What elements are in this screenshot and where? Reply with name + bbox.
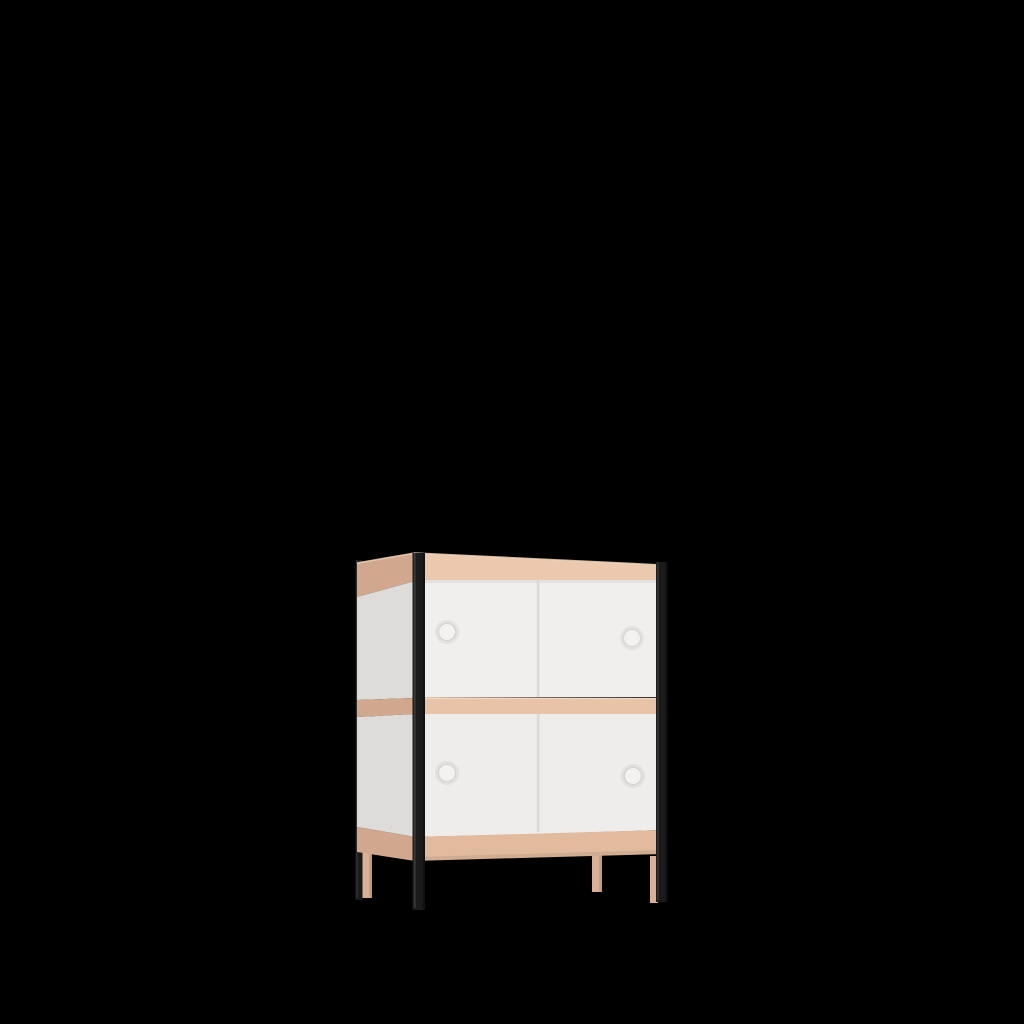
door-seam-lower bbox=[537, 714, 540, 832]
handle-upper-right bbox=[622, 628, 643, 649]
wood-leg-rear-left-shade bbox=[370, 848, 373, 898]
scene-background bbox=[0, 0, 1024, 1024]
handle-lower-left bbox=[437, 763, 458, 784]
wood-leg-rear-center-shade bbox=[599, 855, 602, 892]
background-fill bbox=[0, 0, 1024, 1024]
door-upper-left bbox=[413, 580, 538, 697]
door-seam-upper bbox=[537, 580, 540, 697]
handle-lower-right bbox=[623, 766, 644, 787]
handle-upper-right-disc bbox=[623, 629, 640, 646]
door-lower-left bbox=[413, 714, 538, 837]
cabinet-product-render bbox=[0, 0, 1024, 1024]
front-left-post-highlight bbox=[414, 553, 416, 908]
left-side-panel bbox=[357, 553, 415, 861]
handle-upper-left bbox=[437, 622, 458, 643]
middle-rail-top-highlight bbox=[413, 698, 662, 700]
front-middle-rail bbox=[413, 697, 662, 714]
handle-upper-left-disc bbox=[438, 623, 455, 640]
handle-lower-right-disc bbox=[624, 767, 641, 784]
handle-lower-left-disc bbox=[438, 764, 455, 781]
front-left-post-shade bbox=[423, 553, 425, 910]
side-panel-shading bbox=[357, 553, 415, 861]
front-right-post-shade bbox=[665, 562, 667, 902]
front-right-post-highlight bbox=[657, 562, 659, 900]
front-face bbox=[413, 553, 662, 861]
